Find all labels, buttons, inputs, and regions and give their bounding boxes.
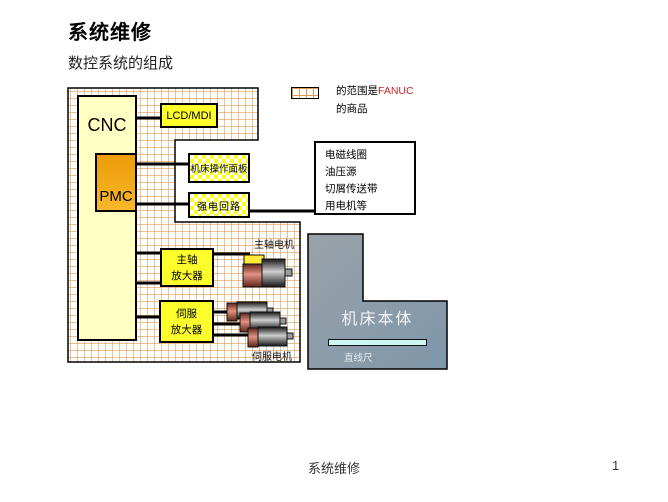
- pmc-label: PMC: [99, 188, 132, 205]
- servo-motor-label: 伺服电机: [252, 348, 292, 363]
- external-devices-box: 电磁线圈 油压源 切屑传送带 用电机等: [314, 141, 416, 215]
- linear-scale-label: 直线尺: [344, 350, 373, 364]
- servo-amp-line2: 放大器: [171, 322, 203, 338]
- spindle-amp-line1: 主轴: [177, 252, 198, 268]
- external-device-item: 切屑传送带: [325, 181, 414, 198]
- lcd-mdi-box: LCD/MDI: [160, 103, 218, 128]
- external-device-item: 用电机等: [325, 198, 414, 215]
- spindle-motor-shaft: [285, 269, 292, 276]
- spindle-motor-body: [262, 259, 285, 287]
- legend-prefix: 的范围是: [336, 85, 378, 97]
- page-number: 1: [612, 458, 619, 473]
- power-circuit-label: 强电回路: [197, 198, 241, 213]
- legend-brand: FANUC: [378, 85, 414, 97]
- operator-panel-box: 机床操作面板: [188, 153, 250, 183]
- linear-scale-bar: [328, 339, 427, 346]
- operator-panel-label: 机床操作面板: [190, 161, 247, 175]
- footer-title: 系统维修: [0, 458, 668, 477]
- spindle-motor-label: 主轴电机: [254, 236, 294, 251]
- cnc-box: CNC: [77, 95, 137, 341]
- legend-line-2: 的商品: [336, 103, 368, 116]
- servo-amp-line1: 伺服: [176, 306, 197, 322]
- fanuc-grid-legend-swatch: [291, 87, 319, 99]
- machine-body-shape: [308, 234, 447, 369]
- spindle-amp-line2: 放大器: [171, 268, 203, 284]
- external-device-item: 电磁线圈: [325, 147, 414, 164]
- lcd-mdi-label: LCD/MDI: [166, 110, 211, 122]
- servo-amplifier-box: 伺服 放大器: [159, 300, 214, 343]
- cnc-label: CNC: [88, 115, 127, 136]
- slide: 系统维修 数控系统的组成: [0, 0, 668, 502]
- spindle-motor-icon: [243, 255, 292, 287]
- machine-body-label: 机床本体: [308, 305, 447, 329]
- spindle-amplifier-box: 主轴 放大器: [160, 248, 214, 287]
- external-device-item: 油压源: [325, 164, 414, 181]
- legend-line-1: 的范围是FANUC: [336, 85, 414, 98]
- servo-motor-3: [248, 327, 293, 347]
- power-circuit-box: 强电回路: [188, 192, 250, 218]
- spindle-motor-cap: [243, 264, 263, 287]
- pmc-box: PMC: [95, 153, 137, 212]
